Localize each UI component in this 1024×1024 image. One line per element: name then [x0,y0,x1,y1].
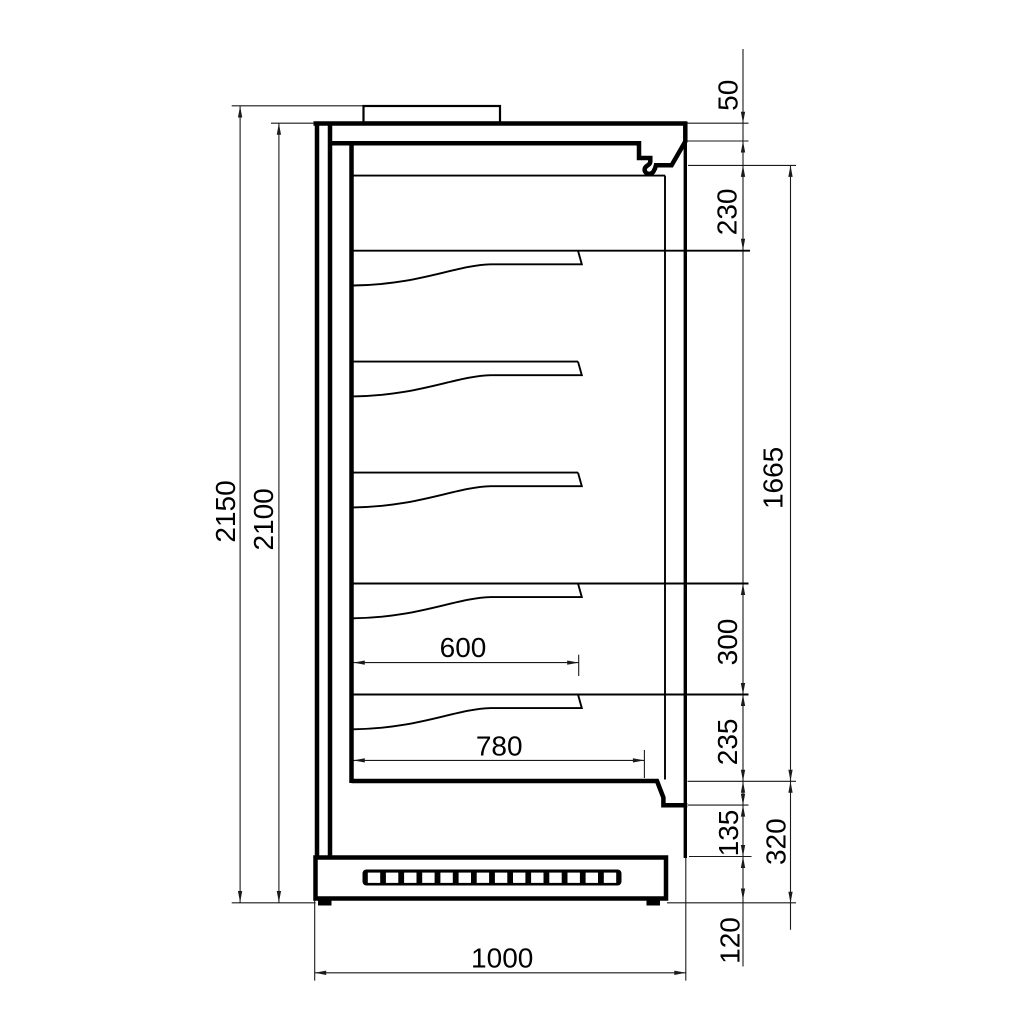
svg-text:780: 780 [476,731,523,762]
svg-text:120: 120 [714,917,745,964]
svg-text:300: 300 [712,619,743,666]
svg-text:320: 320 [760,818,791,865]
svg-text:230: 230 [712,189,743,236]
svg-text:2150: 2150 [210,480,241,542]
svg-text:135: 135 [713,810,744,857]
svg-text:2100: 2100 [248,488,279,550]
svg-text:1000: 1000 [471,942,533,973]
svg-text:235: 235 [712,719,743,766]
svg-text:600: 600 [440,632,487,663]
svg-text:50: 50 [712,80,743,111]
svg-text:1665: 1665 [758,447,789,509]
